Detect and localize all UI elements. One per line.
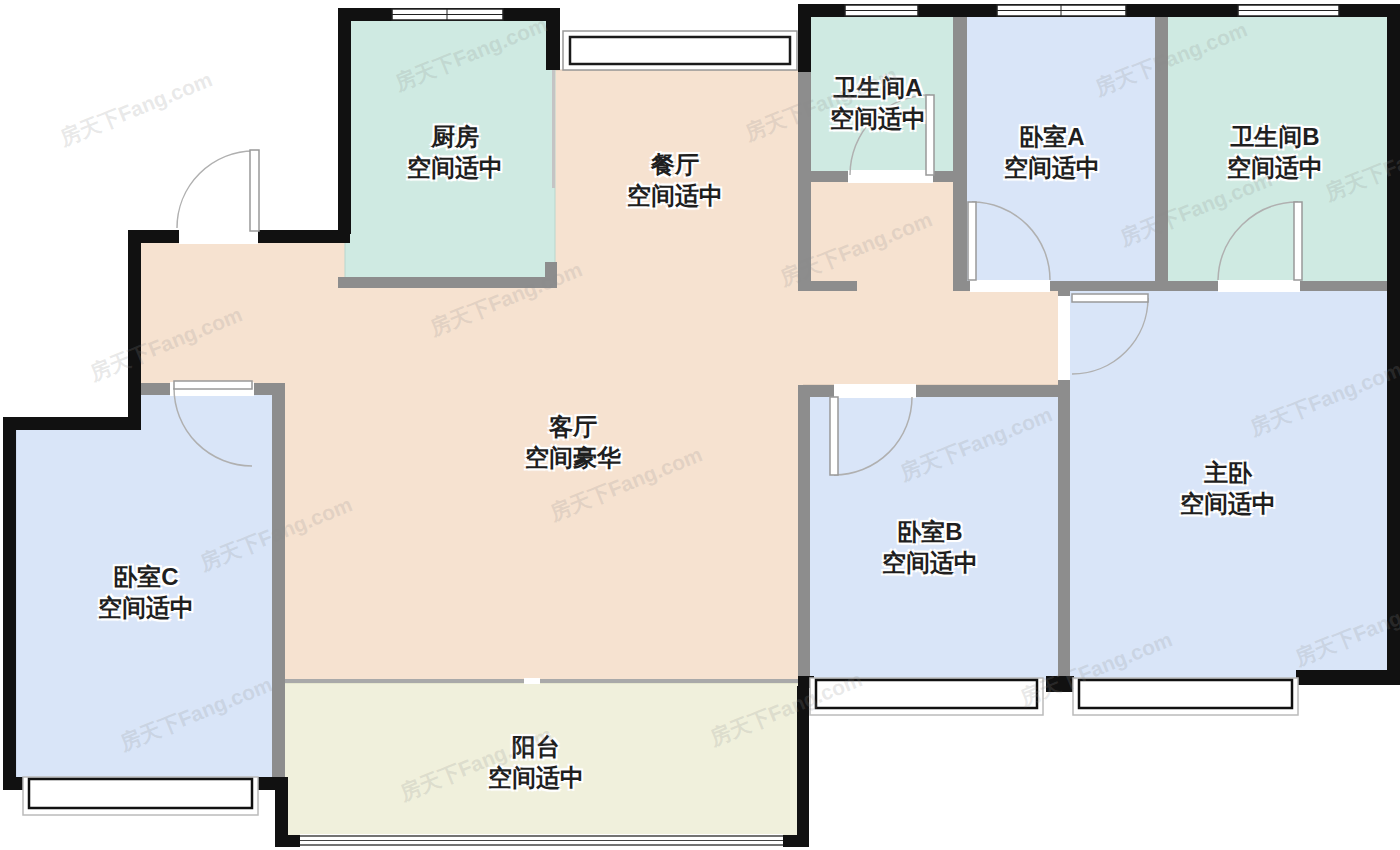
room-grade: 空间豪华: [525, 442, 621, 473]
room-label-bedroom-b: 卧室B 空间适中: [882, 516, 978, 578]
room-name: 卧室A: [1004, 121, 1100, 152]
room-label-master: 主卧 空间适中: [1180, 457, 1276, 519]
wall-segment: [798, 385, 810, 683]
wall-segment: [797, 686, 809, 847]
room-label-kitchen: 厨房 空间适中: [407, 121, 503, 183]
room-grade: 空间适中: [488, 762, 584, 793]
entry-door: [177, 150, 259, 244]
wall-segment: [3, 417, 16, 790]
room-name: 主卧: [1180, 457, 1276, 488]
bathroom-b-window: [1238, 5, 1339, 16]
room-name: 阳台: [488, 731, 584, 762]
balcony-slider-gap: [524, 678, 540, 684]
dining-bay-window: [563, 31, 797, 70]
room-grade: 空间适中: [1227, 152, 1323, 183]
room-grade: 空间适中: [1180, 488, 1276, 519]
balcony-rail-window: [300, 834, 783, 847]
room-name: 餐厅: [627, 149, 723, 180]
wall-segment: [275, 835, 302, 847]
room-grade: 空间适中: [882, 547, 978, 578]
bedroom-b-bay-window: [810, 678, 1043, 715]
bedroom-a-window: [997, 5, 1126, 16]
kitchen-window: [392, 9, 503, 20]
room-label-dining: 餐厅 空间适中: [627, 149, 723, 211]
wall-segment: [338, 8, 351, 234]
wall-segment: [546, 8, 560, 70]
bathroom-a-window: [845, 5, 918, 16]
room-label-bedroom-a: 卧室A 空间适中: [1004, 121, 1100, 183]
room-name: 卧室C: [98, 561, 194, 592]
wall-segment: [1046, 676, 1074, 692]
room-name: 卧室B: [882, 516, 978, 547]
wall-segment: [545, 262, 557, 288]
floorplan-canvas: [0, 0, 1400, 850]
room-label-bathroom-b: 卫生间B 空间适中: [1227, 121, 1323, 183]
wall-segment: [552, 70, 555, 188]
room-grade: 空间适中: [98, 592, 194, 623]
floorplan-page: 厨房 空间适中 餐厅 空间适中 卫生间A 空间适中 卧室A 空间适中 卫生间B …: [0, 0, 1400, 850]
room-label-living: 客厅 空间豪华: [525, 411, 621, 473]
wall-segment: [3, 417, 141, 430]
wall-segment: [1155, 13, 1168, 283]
room-name: 客厅: [525, 411, 621, 442]
room-label-balcony: 阳台 空间适中: [488, 731, 584, 793]
wall-segment: [798, 281, 857, 291]
wall-segment: [272, 383, 285, 779]
room-grade: 空间适中: [407, 152, 503, 183]
room-name: 卫生间B: [1227, 121, 1323, 152]
bedroom-c-bay-window: [23, 777, 258, 815]
master-bay-window: [1073, 678, 1298, 715]
room-label-bathroom-a: 卫生间A 空间适中: [830, 72, 926, 134]
balcony-slider-line: [285, 679, 798, 683]
wall-segment: [128, 230, 141, 430]
wall-segment: [953, 13, 967, 288]
wall-segment: [1296, 670, 1400, 685]
room-name: 卫生间A: [830, 72, 926, 103]
room-label-bedroom-c: 卧室C 空间适中: [98, 561, 194, 623]
wall-segment: [1387, 4, 1400, 685]
room-grade: 空间适中: [627, 180, 723, 211]
room-name: 厨房: [407, 121, 503, 152]
room-grade: 空间适中: [830, 103, 926, 134]
room-grade: 空间适中: [1004, 152, 1100, 183]
wall-segment: [338, 277, 557, 288]
